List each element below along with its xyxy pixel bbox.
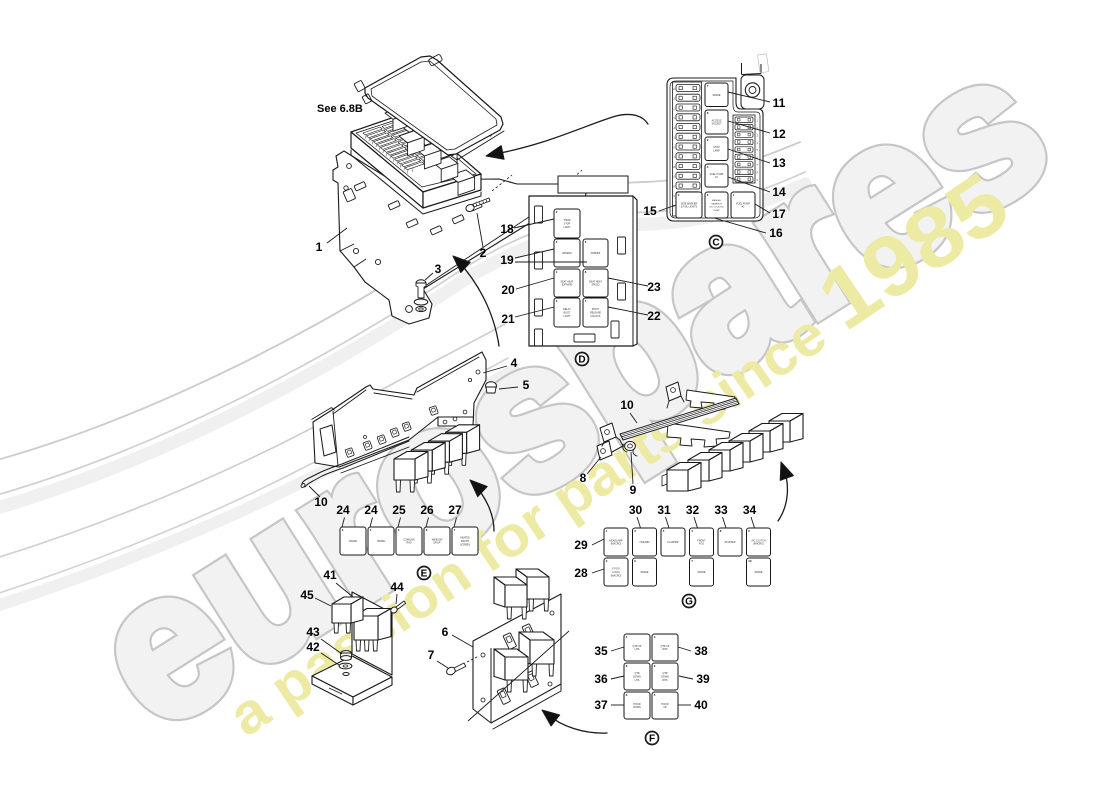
- svg-text:2: 2: [480, 246, 487, 260]
- svg-text:45: 45: [300, 588, 314, 602]
- svg-text:RHS: RHS: [662, 648, 667, 651]
- svg-text:F: F: [649, 734, 655, 745]
- svg-text:DROP: DROP: [434, 542, 441, 545]
- svg-text:40: 40: [694, 698, 708, 712]
- svg-text:WIPERS: WIPERS: [591, 252, 601, 255]
- svg-text:UNLOCK: UNLOCK: [591, 315, 601, 318]
- svg-text:35: 35: [594, 644, 608, 658]
- svg-text:43: 43: [306, 625, 320, 639]
- svg-text:DOWN: DOWN: [633, 706, 641, 709]
- svg-text:1: 1: [316, 240, 323, 254]
- svg-text:16: 16: [769, 226, 783, 240]
- svg-text:12: 12: [772, 127, 786, 141]
- svg-text:HAZARD: HAZARD: [640, 541, 650, 544]
- svg-text:9: 9: [630, 483, 637, 497]
- svg-text:(MACRO): (MACRO): [753, 543, 764, 546]
- svg-text:& TAIL LIGHTS: & TAIL LIGHTS: [681, 206, 698, 209]
- svg-text:37: 37: [594, 698, 608, 712]
- svg-text:26: 26: [420, 503, 434, 517]
- svg-text:30: 30: [629, 503, 643, 517]
- svg-text:11: 11: [773, 96, 786, 110]
- svg-text:20: 20: [501, 283, 515, 297]
- svg-text:WIPERS: WIPERS: [562, 252, 572, 255]
- svg-text:39: 39: [696, 672, 710, 686]
- svg-text:(PASS): (PASS): [592, 284, 600, 287]
- svg-text:G: G: [685, 597, 693, 608]
- svg-text:SOCKET: SOCKET: [712, 123, 722, 126]
- svg-text:15: 15: [643, 204, 657, 218]
- svg-text:D: D: [578, 355, 585, 366]
- svg-text:21: 21: [501, 312, 515, 326]
- svg-text:6: 6: [442, 625, 449, 639]
- svg-text:SPARE: SPARE: [349, 540, 357, 543]
- svg-text:(MACRO): (MACRO): [611, 574, 622, 577]
- svg-text:LAMP: LAMP: [713, 150, 720, 153]
- svg-text:MANUAL: MANUAL: [712, 199, 722, 202]
- svg-text:(DRIVER): (DRIVER): [562, 284, 573, 287]
- svg-text:10: 10: [748, 559, 752, 563]
- svg-text:41: 41: [323, 568, 337, 582]
- svg-text:LHS: LHS: [635, 648, 640, 651]
- svg-text:5: 5: [523, 378, 530, 392]
- svg-text:38: 38: [694, 644, 708, 658]
- svg-text:(MACRO): (MACRO): [611, 543, 622, 546]
- svg-text:10: 10: [314, 495, 328, 509]
- svg-text:36: 36: [594, 672, 608, 686]
- svg-text:19: 19: [500, 253, 514, 267]
- svg-text:STARTER: STARTER: [725, 541, 736, 544]
- svg-text:LIGHT: LIGHT: [563, 226, 571, 229]
- svg-text:25: 25: [392, 503, 406, 517]
- svg-text:27: 27: [448, 503, 462, 517]
- svg-text:28: 28: [574, 566, 588, 580]
- svg-text:44: 44: [390, 580, 404, 594]
- svg-text:SPARE: SPARE: [377, 540, 385, 543]
- svg-text:4: 4: [511, 356, 518, 370]
- svg-text:18: 18: [500, 222, 514, 236]
- svg-text:LIGHT: LIGHT: [563, 315, 571, 318]
- svg-text:FOG: FOG: [699, 543, 704, 546]
- svg-text:42: 42: [306, 640, 320, 654]
- svg-text:E: E: [421, 569, 428, 580]
- svg-text:29: 29: [574, 538, 588, 552]
- svg-text:7: 7: [428, 648, 435, 662]
- svg-text:SPARE: SPARE: [698, 571, 706, 574]
- svg-text:See 6.8B: See 6.8B: [317, 103, 363, 115]
- svg-text:FLASHER: FLASHER: [667, 541, 678, 544]
- svg-text:GEARBOX: GEARBOX: [711, 202, 722, 205]
- svg-text:3: 3: [435, 262, 442, 276]
- svg-text:SPARE: SPARE: [713, 94, 721, 97]
- svg-text:10: 10: [620, 398, 634, 412]
- svg-text:24: 24: [336, 503, 350, 517]
- svg-text:OIL COOLING: OIL COOLING: [709, 207, 723, 209]
- svg-text:SPARE: SPARE: [755, 571, 763, 574]
- svg-text:32: 32: [686, 503, 700, 517]
- svg-text:SPARE: SPARE: [641, 571, 649, 574]
- svg-text:22: 22: [647, 309, 661, 323]
- svg-text:RHS: RHS: [662, 679, 667, 682]
- svg-text:RAD: RAD: [406, 542, 411, 545]
- svg-text:24: 24: [364, 503, 378, 517]
- svg-text:17: 17: [772, 207, 786, 221]
- svg-text:31: 31: [657, 503, 671, 517]
- svg-text:8: 8: [580, 471, 587, 485]
- svg-text:14: 14: [772, 185, 786, 199]
- svg-text:23: 23: [647, 280, 661, 294]
- svg-text:34: 34: [743, 503, 757, 517]
- svg-text:13: 13: [772, 156, 786, 170]
- svg-text:UP: UP: [663, 706, 667, 709]
- svg-text:SCREEN: SCREEN: [460, 543, 470, 546]
- svg-text:PUMP: PUMP: [713, 210, 720, 212]
- svg-text:33: 33: [714, 503, 728, 517]
- svg-text:C: C: [712, 238, 719, 249]
- svg-text:LHS: LHS: [635, 679, 640, 682]
